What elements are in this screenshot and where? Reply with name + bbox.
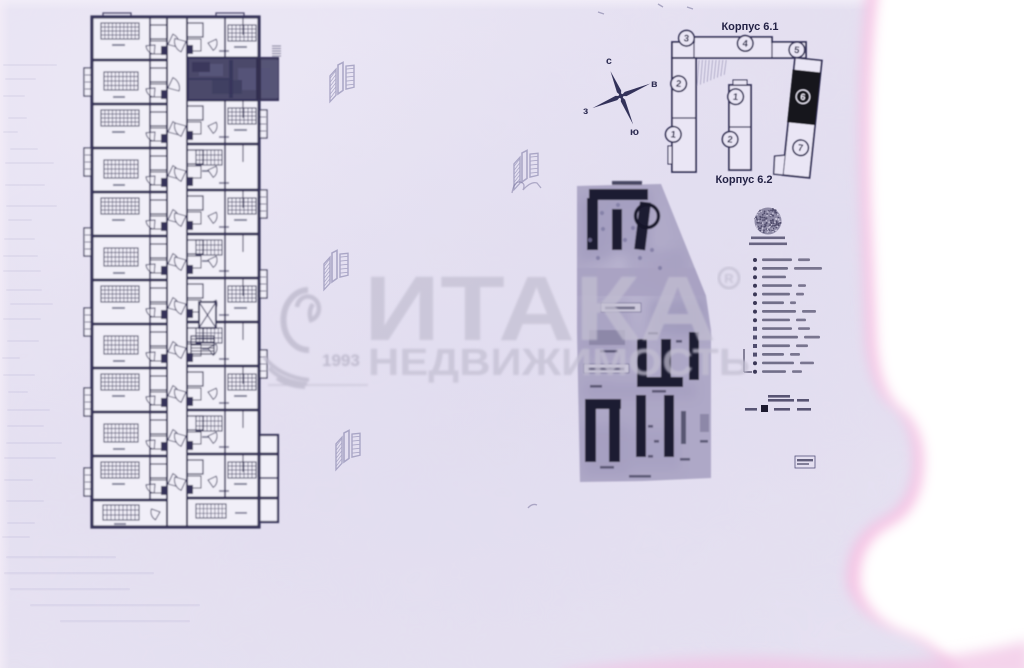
svg-text:1993: 1993 xyxy=(322,351,360,370)
svg-text:ю: ю xyxy=(630,126,639,138)
svg-text:в: в xyxy=(651,78,658,90)
svg-text:6: 6 xyxy=(800,92,806,102)
svg-text:2: 2 xyxy=(727,134,733,145)
svg-text:Корпус 6.1: Корпус 6.1 xyxy=(721,21,778,33)
svg-text:НЕДВИЖИМОСТЬ: НЕДВИЖИМОСТЬ xyxy=(368,342,750,384)
svg-text:R: R xyxy=(724,271,734,286)
svg-text:7: 7 xyxy=(797,143,803,154)
svg-text:Корпус 6.2: Корпус 6.2 xyxy=(715,174,772,186)
svg-text:3: 3 xyxy=(683,33,689,44)
svg-text:с: с xyxy=(606,55,612,67)
svg-text:з: з xyxy=(583,105,588,117)
svg-text:2: 2 xyxy=(675,79,681,90)
